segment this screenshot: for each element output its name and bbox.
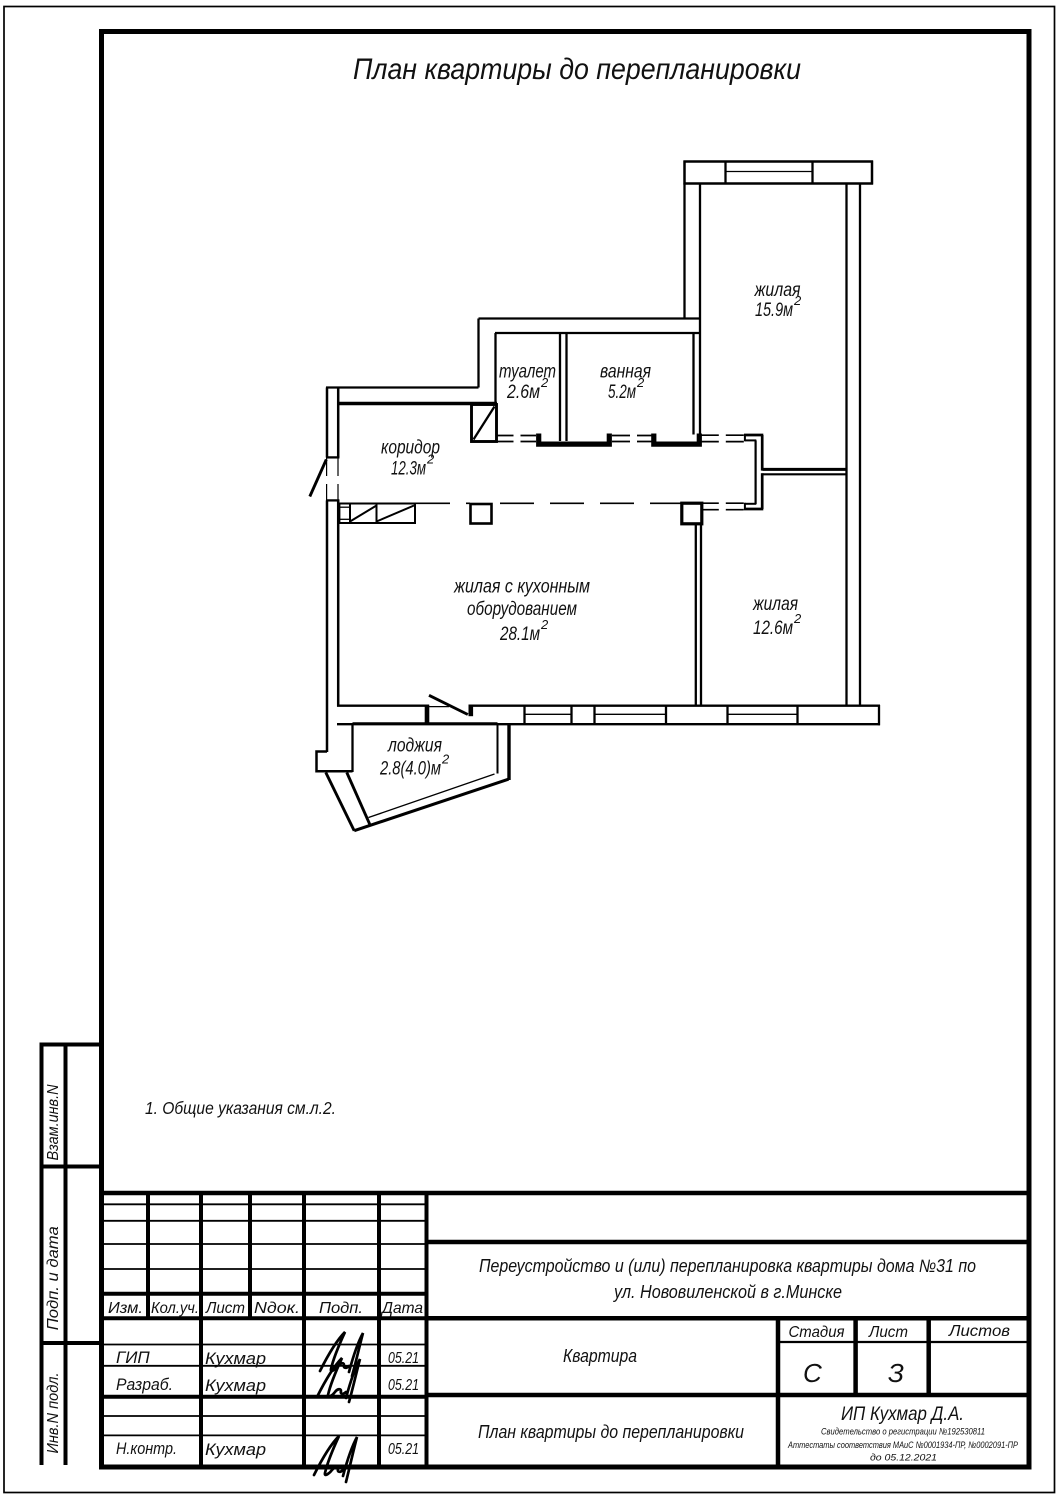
svg-text:15.9м: 15.9м bbox=[755, 299, 793, 321]
svg-text:2: 2 bbox=[793, 611, 802, 626]
svg-text:Изм.: Изм. bbox=[108, 1300, 143, 1317]
svg-text:5.2м: 5.2м bbox=[608, 381, 636, 403]
svg-text:Переустройство и (или) перепла: Переустройство и (или) перепланировка кв… bbox=[479, 1256, 976, 1276]
svg-text:жилая: жилая bbox=[752, 593, 798, 615]
svg-text:С: С bbox=[803, 1358, 822, 1388]
svg-text:Н.контр.: Н.контр. bbox=[116, 1439, 177, 1458]
svg-text:Инв.N подл.: Инв.N подл. bbox=[45, 1373, 62, 1454]
svg-text:План квартиры до перепланировк: План квартиры до перепланировки bbox=[478, 1422, 744, 1442]
svg-text:Аттестаты соответствия МАиС №0: Аттестаты соответствия МАиС №0001934-ПР,… bbox=[787, 1440, 1018, 1451]
svg-text:2: 2 bbox=[540, 617, 549, 632]
svg-text:Кухмар: Кухмар bbox=[205, 1349, 266, 1368]
svg-text:Взам.инв.N: Взам.инв.N bbox=[45, 1084, 62, 1161]
svg-text:Лист: Лист bbox=[868, 1324, 908, 1341]
svg-text:Подп.: Подп. bbox=[319, 1300, 363, 1317]
svg-text:Подп. и дата: Подп. и дата bbox=[45, 1226, 62, 1330]
svg-text:до 05.12.2021: до 05.12.2021 bbox=[870, 1453, 937, 1464]
svg-text:ул. Нововиленской в г.Минске: ул. Нововиленской в г.Минске bbox=[612, 1282, 842, 1302]
svg-text:05.21: 05.21 bbox=[388, 1441, 419, 1458]
svg-text:2: 2 bbox=[540, 375, 549, 390]
svg-text:Листов: Листов bbox=[948, 1323, 1010, 1340]
svg-text:Кухмар: Кухмар bbox=[205, 1376, 266, 1395]
svg-text:2: 2 bbox=[793, 293, 802, 308]
svg-text:Свидетельство о регистрации №1: Свидетельство о регистрации №192530811 bbox=[821, 1427, 985, 1438]
svg-text:Стадия: Стадия bbox=[789, 1324, 845, 1341]
svg-text:лоджия: лоджия bbox=[387, 735, 442, 757]
svg-text:Nдок.: Nдок. bbox=[254, 1300, 300, 1317]
svg-text:28.1м: 28.1м bbox=[499, 623, 540, 645]
svg-text:12.3м: 12.3м bbox=[391, 458, 426, 480]
svg-text:Лист: Лист bbox=[205, 1300, 245, 1317]
svg-text:05.21: 05.21 bbox=[388, 1350, 419, 1367]
svg-text:2.6м: 2.6м bbox=[506, 381, 540, 403]
svg-text:2: 2 bbox=[441, 752, 450, 767]
svg-text:ГИП: ГИП bbox=[116, 1348, 150, 1367]
svg-text:жилая с кухонным: жилая с кухонным bbox=[453, 576, 590, 598]
svg-text:оборудованием: оборудованием bbox=[467, 598, 577, 620]
svg-text:Дата: Дата bbox=[380, 1300, 423, 1317]
svg-text:План квартиры до перепланировк: План квартиры до перепланировки bbox=[353, 53, 801, 86]
svg-text:1. Общие указания см.л.2.: 1. Общие указания см.л.2. bbox=[145, 1098, 336, 1118]
svg-text:ИП Кухмар Д.А.: ИП Кухмар Д.А. bbox=[841, 1403, 964, 1425]
svg-text:З: З bbox=[888, 1358, 904, 1388]
svg-text:Кол.уч.: Кол.уч. bbox=[151, 1300, 199, 1317]
svg-text:12.6м: 12.6м bbox=[753, 617, 793, 639]
svg-text:Кухмар: Кухмар bbox=[205, 1440, 266, 1459]
svg-text:2: 2 bbox=[636, 375, 645, 390]
svg-text:2.8(4.0)м: 2.8(4.0)м bbox=[379, 758, 441, 780]
svg-text:Квартира: Квартира bbox=[563, 1346, 637, 1366]
svg-text:05.21: 05.21 bbox=[388, 1377, 419, 1394]
svg-text:2: 2 bbox=[426, 452, 435, 467]
svg-text:Разраб.: Разраб. bbox=[116, 1375, 173, 1394]
